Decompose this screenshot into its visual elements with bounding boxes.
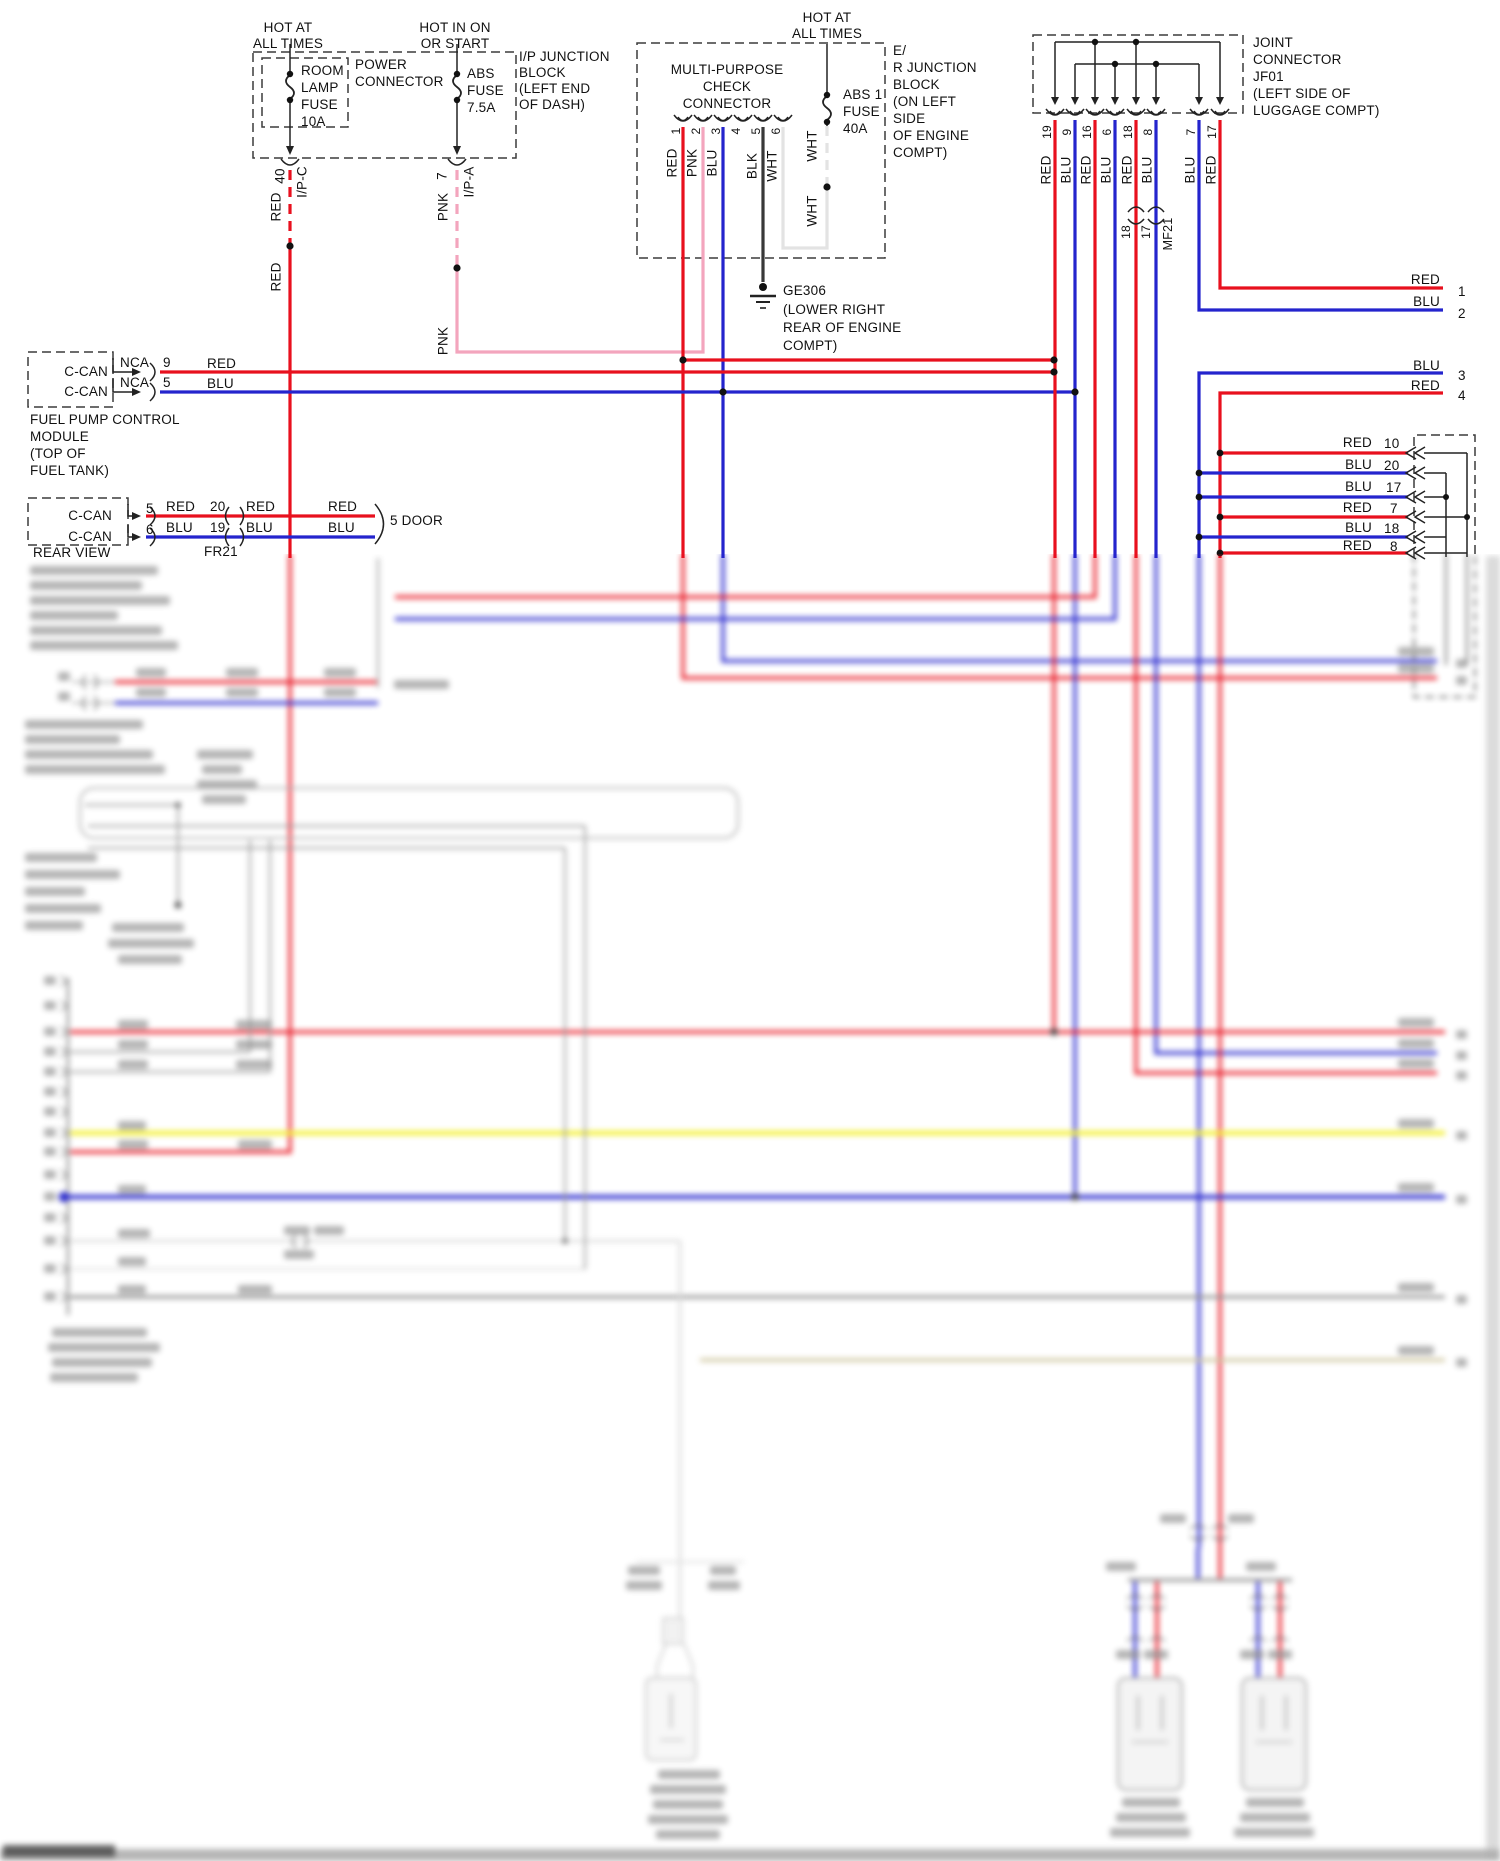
arrowheads	[132, 97, 1224, 541]
blur-connector-symbols	[83, 675, 1289, 1641]
connector-symbols	[150, 109, 1425, 559]
room-lamp-fuse-box	[262, 58, 348, 127]
wire-stub-2	[1199, 120, 1443, 310]
five-door-bracket	[375, 504, 384, 544]
black-circuit-lines	[113, 42, 1467, 557]
jf01-box	[1033, 35, 1243, 113]
blur-wires	[64, 554, 1445, 1678]
wire-stub-1	[1220, 120, 1443, 288]
rear-view-module-box	[28, 498, 128, 545]
fuel-pump-module-box	[28, 352, 113, 407]
ip-junction-block-box	[253, 52, 516, 158]
junction-dots	[286, 39, 1470, 557]
er-junction-block-box	[637, 43, 885, 258]
fuse-symbols	[286, 75, 831, 120]
fuse-dots	[287, 71, 830, 125]
blur-faint-wires	[70, 558, 1292, 1678]
wire-pnk	[457, 127, 703, 352]
colored-wires	[146, 120, 1443, 558]
wire-stub-3	[1199, 373, 1443, 558]
white-wires	[783, 126, 827, 248]
blur-module-pins	[60, 976, 68, 1315]
copyright-blob	[3, 1845, 115, 1857]
ground-symbol-ge306	[750, 283, 776, 308]
blurred-text-blobs	[25, 566, 1467, 1839]
blur-dots	[59, 802, 1079, 1244]
wiring-diagram-page: HOT ATALL TIMESHOT IN ONOR STARTROOMLAMP…	[0, 0, 1500, 1861]
